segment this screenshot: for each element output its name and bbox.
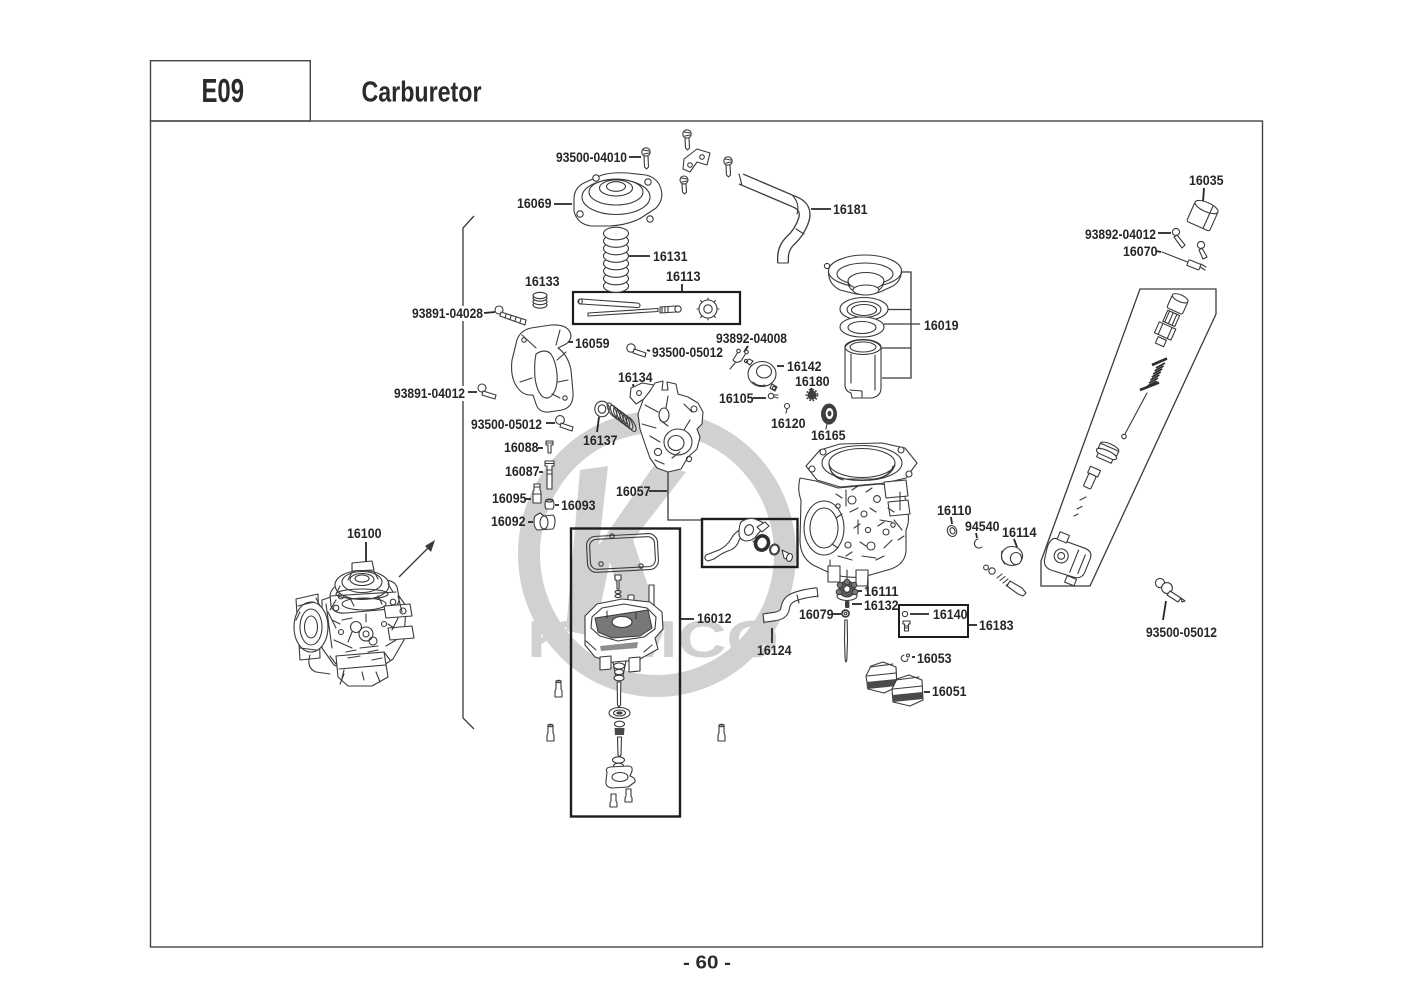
svg-text:16079: 16079	[799, 606, 834, 622]
svg-text:16142: 16142	[787, 358, 822, 374]
svg-text:93891-04028: 93891-04028	[412, 305, 483, 321]
svg-text:16110: 16110	[937, 502, 972, 518]
svg-text:16012: 16012	[697, 610, 732, 626]
svg-text:- 60 -: - 60 -	[683, 953, 731, 973]
svg-text:16181: 16181	[833, 201, 868, 217]
svg-text:16124: 16124	[757, 642, 792, 658]
svg-text:16165: 16165	[811, 427, 846, 443]
svg-text:16087: 16087	[505, 463, 540, 479]
svg-text:16113: 16113	[666, 268, 701, 284]
svg-text:16057: 16057	[616, 483, 651, 499]
svg-text:16114: 16114	[1002, 524, 1037, 540]
svg-text:16132: 16132	[864, 597, 899, 613]
svg-text:16137: 16137	[583, 432, 618, 448]
svg-text:16183: 16183	[979, 617, 1014, 633]
svg-text:16140: 16140	[933, 606, 968, 622]
svg-text:16092: 16092	[491, 513, 526, 529]
svg-text:93892-04008: 93892-04008	[716, 330, 787, 346]
svg-text:93500-04010: 93500-04010	[556, 149, 627, 165]
svg-text:Carburetor: Carburetor	[362, 77, 482, 109]
svg-text:16053: 16053	[917, 650, 952, 666]
svg-text:16105: 16105	[719, 390, 754, 406]
svg-text:16133: 16133	[525, 273, 560, 289]
svg-text:16134: 16134	[618, 369, 653, 385]
svg-text:16100: 16100	[347, 525, 382, 541]
svg-text:E09: E09	[202, 73, 245, 110]
svg-text:93500-05012: 93500-05012	[1146, 624, 1217, 640]
svg-text:93891-04012: 93891-04012	[394, 385, 465, 401]
svg-text:16051: 16051	[932, 683, 967, 699]
svg-text:16131: 16131	[653, 248, 688, 264]
svg-text:16069: 16069	[517, 195, 552, 211]
svg-text:16035: 16035	[1189, 172, 1224, 188]
svg-text:93500-05012: 93500-05012	[652, 344, 723, 360]
svg-text:16095: 16095	[492, 490, 527, 506]
svg-text:16180: 16180	[795, 373, 830, 389]
svg-text:93892-04012: 93892-04012	[1085, 226, 1156, 242]
svg-text:16070: 16070	[1123, 243, 1158, 259]
svg-text:93500-05012: 93500-05012	[471, 416, 542, 432]
svg-text:16120: 16120	[771, 415, 806, 431]
svg-text:16088: 16088	[504, 439, 539, 455]
svg-text:16059: 16059	[575, 335, 610, 351]
svg-text:16093: 16093	[561, 497, 596, 513]
svg-text:16019: 16019	[924, 317, 959, 333]
svg-text:94540: 94540	[965, 518, 1000, 534]
